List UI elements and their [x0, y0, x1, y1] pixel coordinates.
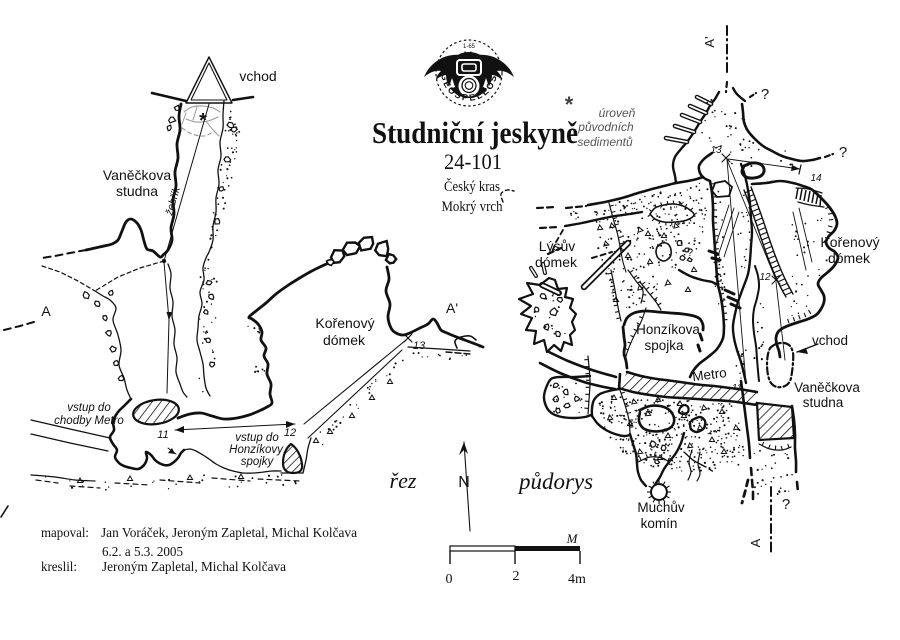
svg-text:Vaněčkova: Vaněčkova	[103, 167, 171, 183]
svg-text:vstup do: vstup do	[235, 432, 279, 444]
svg-text:studna: studna	[803, 395, 844, 410]
svg-text:?: ?	[761, 86, 769, 103]
svg-text:2: 2	[513, 569, 520, 584]
svg-text:A: A	[748, 538, 763, 547]
svg-text:6.2. a 5.3. 2005: 6.2. a 5.3. 2005	[102, 545, 183, 560]
svg-text:spojka: spojka	[644, 338, 684, 353]
svg-text:11: 11	[157, 429, 168, 441]
svg-text:půdorys: půdorys	[517, 469, 593, 494]
svg-text:?: ?	[687, 247, 693, 259]
svg-text:12: 12	[284, 427, 296, 439]
svg-text:0: 0	[446, 572, 453, 587]
svg-text:úroveň: úroveň	[599, 106, 636, 120]
svg-text:Honzíkovy: Honzíkovy	[229, 444, 284, 456]
svg-text:24-101: 24-101	[444, 149, 502, 174]
svg-text:Kořenový: Kořenový	[315, 315, 374, 331]
svg-text:Jan Voráček, Jeroným Zapletal,: Jan Voráček, Jeroným Zapletal, Michal Ko…	[101, 526, 358, 541]
svg-text:Vaněčkova: Vaněčkova	[794, 380, 860, 395]
svg-text:Studniční jeskyně: Studniční jeskyně	[372, 115, 578, 150]
svg-text:vchod: vchod	[239, 68, 276, 84]
svg-text:M: M	[566, 531, 579, 546]
svg-text:13: 13	[413, 340, 426, 352]
svg-text:Kořenový: Kořenový	[820, 234, 879, 250]
svg-text:vstup do: vstup do	[67, 402, 111, 414]
svg-text:kreslil:: kreslil:	[41, 560, 77, 575]
svg-text:Český kras: Český kras	[444, 178, 500, 195]
svg-text:komín: komín	[641, 516, 678, 531]
svg-text:studna: studna	[116, 183, 158, 199]
svg-text:N: N	[458, 474, 470, 491]
svg-text:A': A'	[446, 300, 458, 316]
svg-text:A': A'	[702, 36, 717, 47]
svg-text:Honzíkova: Honzíkova	[636, 322, 700, 337]
svg-text:A: A	[41, 303, 51, 319]
svg-text:1-65: 1-65	[463, 44, 476, 50]
svg-text:Muchův: Muchův	[637, 500, 685, 515]
svg-text:dómek: dómek	[323, 332, 366, 348]
svg-text:12: 12	[759, 272, 771, 283]
svg-text:?: ?	[782, 496, 790, 513]
svg-text:vchod: vchod	[812, 333, 848, 348]
svg-text:dómek: dómek	[535, 254, 578, 270]
svg-text:sedimentů: sedimentů	[577, 135, 633, 149]
svg-text:*: *	[565, 92, 574, 117]
svg-text:4m: 4m	[568, 572, 586, 587]
svg-text:původních: původních	[577, 120, 634, 134]
svg-text:?: ?	[839, 144, 847, 161]
svg-text:mapoval:: mapoval:	[41, 526, 89, 541]
svg-text:14: 14	[810, 173, 822, 184]
svg-text:dómek: dómek	[828, 250, 871, 266]
svg-text:řez: řez	[390, 468, 417, 493]
svg-text:Mokrý vrch: Mokrý vrch	[442, 199, 504, 215]
svg-text:Jeroným Zapletal, Michal Kolča: Jeroným Zapletal, Michal Kolčava	[102, 560, 287, 575]
svg-text:spojky: spojky	[241, 456, 275, 468]
